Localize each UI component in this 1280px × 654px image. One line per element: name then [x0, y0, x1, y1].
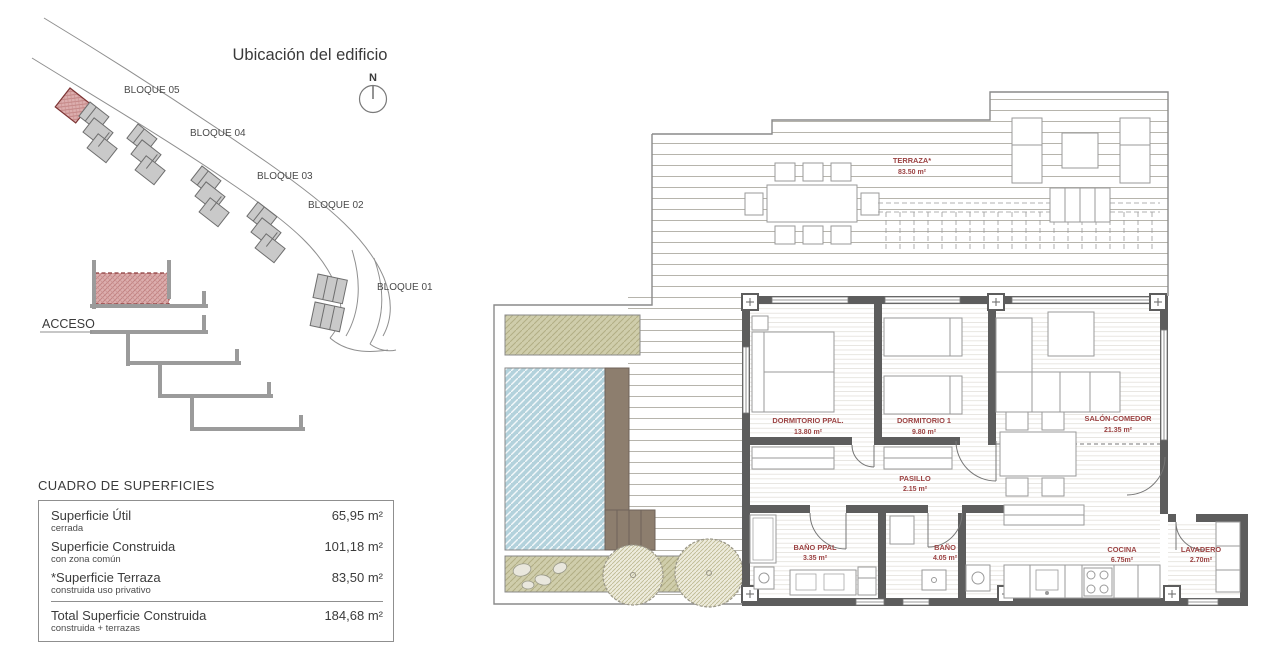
bloque-04-cluster [115, 124, 178, 185]
room-area-lavadero: 2.70m² [1190, 557, 1213, 564]
row-label: Superficie Útil [51, 508, 131, 523]
table-row: Superficie Construida con zona común 101… [51, 539, 383, 565]
site-plan-title: Ubicación del edificio [232, 46, 387, 64]
row-value: 65,95 m² [332, 508, 383, 523]
total-label: Total Superficie Construida [51, 608, 206, 623]
dining-table [1000, 432, 1076, 476]
section-highlighted-unit [95, 273, 169, 304]
section-drawing: ACCESO [40, 262, 303, 429]
row-note: cerrada [51, 523, 131, 534]
toilet [966, 565, 990, 591]
bloque-03-label: BLOQUE 03 [257, 171, 313, 182]
room-area-pasillo: 2.15 m² [903, 486, 928, 493]
row-value: 83,50 m² [332, 570, 383, 585]
toilet [754, 567, 774, 589]
room-label-dormitorio-ppal: DORMITORIO PPAL. [772, 416, 843, 425]
compass-n-label: N [369, 72, 377, 84]
room-label-bano: BAÑO [934, 543, 956, 552]
room-area-bano: 4.05 m² [933, 555, 958, 562]
north-compass-icon: N [360, 72, 387, 113]
surface-table-title: CUADRO DE SUPERFICIES [38, 478, 394, 493]
room-area-salon-comedor: 21.35 m² [1104, 427, 1133, 434]
tree [603, 545, 663, 605]
laundry-fixtures [1216, 522, 1240, 592]
room-label-pasillo: PASILLO [899, 474, 931, 483]
bloque-04-label: BLOQUE 04 [190, 128, 246, 139]
outdoor-dining-table [767, 185, 857, 222]
room-area-terraza: 83.50 m² [898, 169, 927, 176]
sink [922, 570, 946, 590]
row-value: 101,18 m² [324, 539, 383, 554]
pool [505, 368, 605, 550]
row-note: con zona común [51, 554, 175, 565]
bloque-05-label: BLOQUE 05 [124, 85, 180, 96]
row-label: *Superficie Terraza [51, 570, 161, 585]
total-note: construida + terrazas [51, 623, 206, 634]
room-label-dormitorio-1: DORMITORIO 1 [897, 416, 951, 425]
room-area-dormitorio-1: 9.80 m² [912, 429, 937, 436]
linen-column [858, 567, 876, 595]
room-label-bano-ppal: BAÑO PPAL [794, 543, 837, 552]
bloque-01-cluster [307, 274, 350, 332]
bloque-03-cluster [179, 166, 242, 227]
surface-table: CUADRO DE SUPERFICIES Superficie Útil ce… [38, 478, 394, 642]
planter-top [505, 315, 640, 355]
coffee-table [1048, 312, 1094, 356]
washbasin [890, 516, 914, 544]
room-label-cocina: COCINA [1107, 545, 1137, 554]
bloque-01-label: BLOQUE 01 [377, 282, 433, 293]
tree [675, 539, 743, 607]
table-row: Superficie Útil cerrada 65,95 m² [51, 508, 383, 534]
pool-steps [605, 510, 655, 550]
bloque-02-cluster [235, 202, 298, 263]
table-row: *Superficie Terraza construida uso priva… [51, 570, 383, 596]
row-label: Superficie Construida [51, 539, 175, 554]
total-value: 184,68 m² [324, 608, 383, 623]
room-area-dormitorio-ppal: 13.80 m² [794, 429, 823, 436]
room-label-lavadero: LAVADERO [1181, 545, 1222, 554]
room-area-bano-ppal: 3.35 m² [803, 555, 828, 562]
floorplan-sheet: Ubicación del edificio N [0, 0, 1280, 654]
sofa-chaise [996, 372, 1120, 412]
bloque-02-label: BLOQUE 02 [308, 200, 364, 211]
room-area-cocina: 6.75m² [1111, 557, 1134, 564]
nightstand [752, 316, 768, 330]
row-note: construida uso privativo [51, 585, 161, 596]
shower [750, 515, 776, 563]
room-label-terraza: TERRAZA* [893, 156, 931, 165]
side-table [1062, 133, 1098, 168]
surface-table-box: Superficie Útil cerrada 65,95 m² Superfi… [38, 500, 394, 642]
access-label: ACCESO [42, 317, 95, 331]
table-total-row: Total Superficie Construida construida +… [51, 601, 383, 634]
floor-plan: TERRAZA* 83.50 m² DORMITORIO PPAL. 13.80… [494, 92, 1248, 607]
room-label-salon-comedor: SALÓN-COMEDOR [1085, 414, 1153, 423]
